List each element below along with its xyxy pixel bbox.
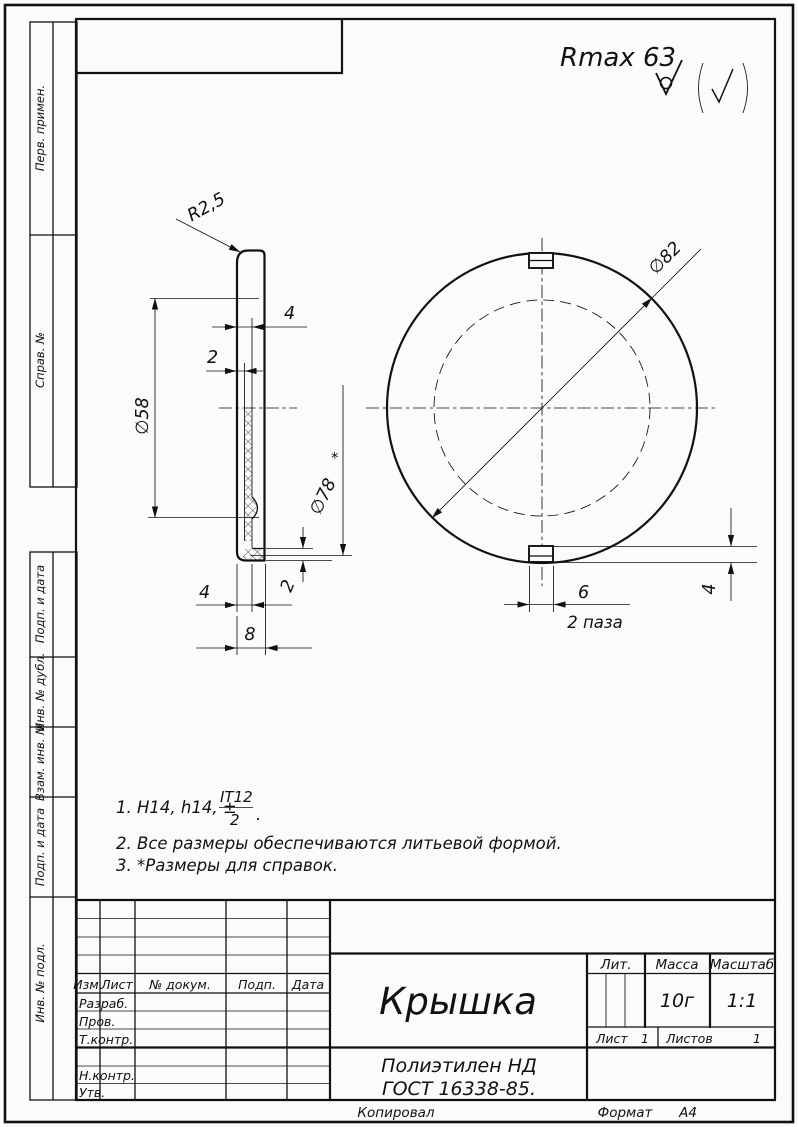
col-header-data: Дата [291,977,324,992]
section-hatch-lip [243,549,264,560]
roughness-bracket-check-icon [699,63,748,113]
drawing-frame [76,19,775,1100]
note2-number: 2. [116,834,132,853]
dim-lip-thickness: 2 [266,527,332,595]
scale-label: Масштаб [710,957,774,973]
margin-label-vzam-inv: Взам. инв. № [33,723,47,801]
margin-label-sprav-no: Справ. № [33,332,47,388]
material-line2: ГОСТ 16338-85. [382,1078,536,1100]
roughness-stamp: Rmax 63 [560,43,748,113]
drawing-sheet: Перв. примен. Справ. № Подп. и дата Инв.… [0,0,798,1127]
dim-outer-diameter: ∅82 [432,238,701,518]
sheets-value: 1 [753,1031,761,1046]
scale-value: 1:1 [727,990,758,1012]
slot-count-note: 2 паза [567,613,623,632]
margin-table-lower: Подп. и дата Инв. № дубл. Взам. инв. № П… [30,552,77,1100]
copied-label: Копировал [357,1105,435,1121]
dim-foot-width-text: 4 [199,583,210,603]
dim-total-height: 8 [196,564,312,655]
col-header-list: Лист [100,977,133,992]
section-hatch-wall [245,408,258,541]
row-label-utv: Утв. [79,1085,105,1100]
drawing-canvas: Перв. примен. Справ. № Подп. и дата Инв.… [0,0,798,1127]
note1-fraction-numerator: IT12 [220,788,253,806]
col-header-doc: № докум. [148,977,211,992]
note1-fraction-denominator: 2 [230,811,240,829]
margin-label-podp-data-1: Подп. и дата [33,565,47,643]
sheet-footer: Копировал Формат А4 [357,1105,696,1121]
dim-bead-diameter-text: ∅58 [133,397,153,435]
note1-period: . [256,805,261,824]
sheet-label: Лист [595,1031,628,1046]
margin-table-upper: Перв. примен. Справ. № [30,22,77,487]
margin-label-perv-primen: Перв. примен. [33,85,47,171]
dim-corner-radius: R2,5 [176,189,240,252]
row-label-razrab: Разраб. [79,996,128,1011]
margin-label-inv-podl: Инв. № подл. [33,943,47,1022]
col-header-podp: Подп. [238,977,276,992]
note1-number: 1. [116,798,132,817]
note2-text: Все размеры обеспечиваются литьевой форм… [137,834,562,853]
row-label-tkontr: Т.контр. [79,1032,133,1047]
dim-lip-inner-diameter-text: ∅78 [306,476,340,518]
dim-outer-diameter-text: ∅82 [645,238,686,279]
section-view: R2,5 4 2 ∅58 ∅78 * [133,189,352,655]
material-line1: Полиэтилен НД [381,1055,537,1077]
dim-total-height-text: 8 [244,625,255,645]
format-label: Формат [598,1105,654,1121]
dim-rim-width-text: 4 [284,304,295,324]
dim-slot-depth-text: 4 [700,583,720,594]
mass-label: Масса [655,957,698,973]
note3-text: *Размеры для справок. [137,856,338,875]
dim-slot-width: 6 2 паза [504,566,630,632]
technical-notes: 1. H14, h14, ± IT12 2 . 2. Все размеры о… [116,788,562,875]
part-name: Крышка [379,980,537,1023]
slot-bottom [529,546,553,562]
dim-bead-diameter: ∅58 [133,299,259,518]
mass-value: 10г [660,990,695,1012]
dim-slot-width-text: 6 [578,583,589,603]
lit-label: Лит. [599,957,631,973]
roughness-value: Rmax 63 [560,43,676,73]
dim-rim-width: 4 [212,304,307,327]
sheets-label: Листов [665,1031,713,1046]
top-view: ∅82 6 2 паза 4 [366,238,757,632]
row-label-nkontr: Н.контр. [79,1068,135,1083]
slot-top [529,253,553,268]
note3-number: 3. [116,856,132,875]
margin-label-inv-dubl: Инв. № дубл. [33,653,47,732]
dim-corner-radius-text: R2,5 [184,189,229,226]
format-value: А4 [678,1105,697,1121]
col-header-izm: Изм. [73,977,102,992]
dim-rim-step-text: 2 [207,348,218,368]
margin-label-podp-data-2: Подп. и дата [33,808,47,886]
dim-lip-thickness-text: 2 [277,577,300,595]
dim-reference-star: * [327,449,347,464]
dim-rim-step: 2 [206,348,263,371]
row-label-prov: Пров. [79,1014,115,1029]
top-designation-box [76,19,342,73]
title-block: Изм. Лист № докум. Подп. Дата Разраб. Пр… [73,900,775,1100]
sheet-value: 1 [641,1031,649,1046]
